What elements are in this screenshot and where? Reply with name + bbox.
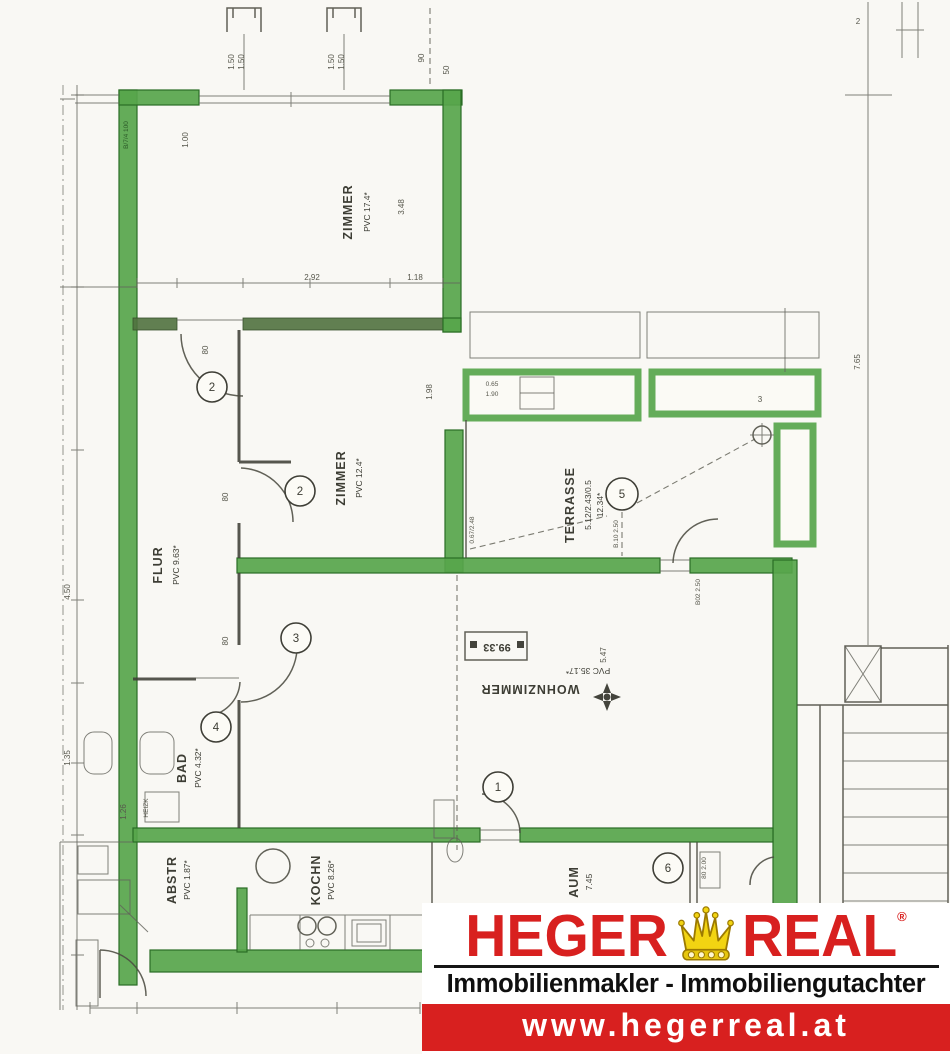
dim: 1.18	[407, 273, 423, 282]
dim: 80	[221, 636, 230, 645]
room-labels: ZIMMER PVC 17.4* ZIMMER PVC 12.4* FLUR P…	[143, 184, 610, 905]
flur-partition	[239, 330, 291, 828]
dim: 1.35	[63, 750, 72, 766]
dim: 1.26	[119, 804, 128, 820]
room-label-vorraum: AUM	[567, 866, 581, 897]
dim: 4.50	[63, 584, 72, 600]
room-detail-abstellraum: PVC 1.87*	[182, 859, 192, 899]
dim: 1.98	[425, 384, 434, 400]
dim: 0.65	[486, 381, 499, 388]
wall-living-bottom-a	[133, 828, 480, 842]
website-banner: www.hegerreal.at	[422, 1004, 950, 1051]
terrace-parapet-right	[652, 372, 818, 414]
burner-icon	[318, 917, 336, 935]
dim: 0.67/2.48	[469, 516, 476, 543]
radiator-label: HEIZK	[143, 798, 150, 818]
dim: 90	[417, 53, 426, 62]
agency-logo-block: HEGER REAL ® Immobilienmakler - Immobili…	[422, 903, 950, 1054]
bathtub-icon	[140, 732, 174, 774]
room-label-abstellraum: ABSTR	[165, 856, 179, 904]
room-label-flur: FLUR	[151, 546, 165, 583]
floorplan-drawing: ZIMMER PVC 17.4* ZIMMER PVC 12.4* FLUR P…	[0, 0, 950, 1054]
boiler-icon	[256, 849, 290, 883]
door-arc-flur	[241, 650, 297, 702]
dim: 5.47	[599, 647, 608, 663]
brand-row: HEGER REAL ®	[422, 901, 950, 963]
door-marker-number: 3	[293, 633, 299, 645]
room-detail-zimmer2: PVC 12.4*	[354, 457, 364, 497]
room-detail-terrasse: 5.12/2.43/0.5	[583, 480, 593, 530]
scanned-floorplan-page: ZIMMER PVC 17.4* ZIMMER PVC 12.4* FLUR P…	[0, 0, 950, 1054]
room-area-terrasse: 12.34*	[595, 492, 605, 517]
dim: 1.50	[237, 54, 246, 70]
wall-left	[119, 90, 137, 985]
dim: B.10 2.50	[613, 520, 620, 548]
room-label-zimmer2: ZIMMER	[334, 450, 348, 505]
right-dim-line	[845, 2, 924, 645]
dim: 3.48	[397, 199, 406, 215]
room-label-bad: BAD	[175, 753, 189, 783]
wall-living-top-a	[237, 558, 660, 573]
sink-basin	[357, 924, 381, 942]
brand-real: REAL	[742, 908, 897, 964]
wall-mid-a	[133, 318, 177, 330]
top-window-lines	[60, 92, 390, 107]
compass-icon	[593, 683, 621, 711]
dim: 7.65	[853, 354, 862, 370]
dim: 2	[856, 17, 861, 26]
wall-kitchen-divider	[237, 888, 247, 952]
door-markers: 2 2 3 4 5 1 6	[197, 372, 683, 883]
door-marker-number: 1	[495, 782, 501, 794]
dim: 1.90	[486, 391, 499, 398]
area-stamp: 99.33	[465, 632, 527, 660]
shaft-cross	[845, 646, 881, 702]
dim: B02 2.50	[695, 579, 702, 605]
survey-point-icon	[750, 423, 774, 447]
room-label-terrasse: TERRASSE	[563, 467, 577, 543]
wall-living-bottom-b	[520, 828, 773, 842]
dim: 80	[221, 492, 230, 501]
dim: 1.50	[327, 54, 336, 70]
door-marker-number: 4	[213, 722, 220, 734]
dim: 1.50	[337, 54, 346, 70]
door-arc-vorraum	[750, 857, 774, 885]
door-marker-number: 5	[619, 489, 625, 501]
bottom-dim-row	[90, 1002, 420, 1014]
terrace-side-window	[777, 426, 813, 544]
brand-heger: HEGER	[465, 908, 668, 964]
neighbor-balcony-b	[647, 312, 819, 358]
logo-tagline: Immobilienmakler - Immobiliengutachter	[422, 969, 950, 1001]
neighbor-balcony-a	[470, 312, 640, 358]
room-detail-flur: PVC 9.63*	[171, 544, 181, 584]
wall-top-left	[119, 90, 199, 105]
crown-icon	[660, 901, 752, 971]
chimney-marker-b	[327, 8, 361, 32]
room-detail-bad: PVC 4.32*	[193, 747, 203, 787]
wall-note: B/7/4 100	[123, 121, 130, 149]
wall-mid-b	[243, 318, 443, 330]
dim: 80	[201, 345, 210, 354]
door-marker-number: 6	[665, 863, 671, 875]
neighbor-bathtub-icon	[84, 732, 112, 774]
entrance-detail	[76, 940, 98, 1006]
door-marker-number: 2	[297, 486, 303, 498]
area-box-value: 99.33	[483, 641, 511, 653]
wall-mid-c	[443, 318, 461, 332]
room-detail-vorraum: 7.45	[584, 873, 594, 890]
entrance-detail	[78, 846, 108, 874]
room-detail-kueche: PVC 8.26*	[326, 859, 336, 899]
wall-zimmer2-right	[445, 430, 463, 572]
room-label-zimmer1: ZIMMER	[341, 184, 355, 239]
room-label-wohnzimmer: WOHNZIMMER	[481, 682, 580, 696]
dim: 2.92	[304, 273, 320, 282]
room-detail-wohnzimmer: PVC 35.17*	[565, 666, 610, 676]
wc-icon	[145, 792, 179, 822]
dim: 1.00	[181, 132, 190, 148]
door-arc-bad	[206, 682, 240, 716]
room-detail-zimmer1: PVC 17.4*	[362, 191, 372, 231]
dim: 1.50	[227, 54, 236, 70]
area-box-square	[517, 641, 524, 648]
dim: 3	[758, 395, 763, 404]
burner-icon	[298, 917, 316, 935]
door-arcs	[100, 334, 774, 998]
door-marker-number: 2	[209, 382, 215, 394]
wall-zimmer1-right	[443, 90, 461, 332]
wall-bottom	[150, 950, 424, 972]
stair-treads	[820, 733, 948, 929]
dim: 80 2.00	[701, 857, 708, 879]
area-box-square	[470, 641, 477, 648]
door-arc-terrace	[673, 519, 718, 563]
dim: 50	[442, 65, 451, 74]
burner-icon	[321, 939, 329, 947]
registered-mark: ®	[897, 909, 907, 924]
chimney-marker-a	[227, 8, 261, 32]
burner-icon	[306, 939, 314, 947]
room-label-kueche: KOCHN	[309, 855, 323, 906]
